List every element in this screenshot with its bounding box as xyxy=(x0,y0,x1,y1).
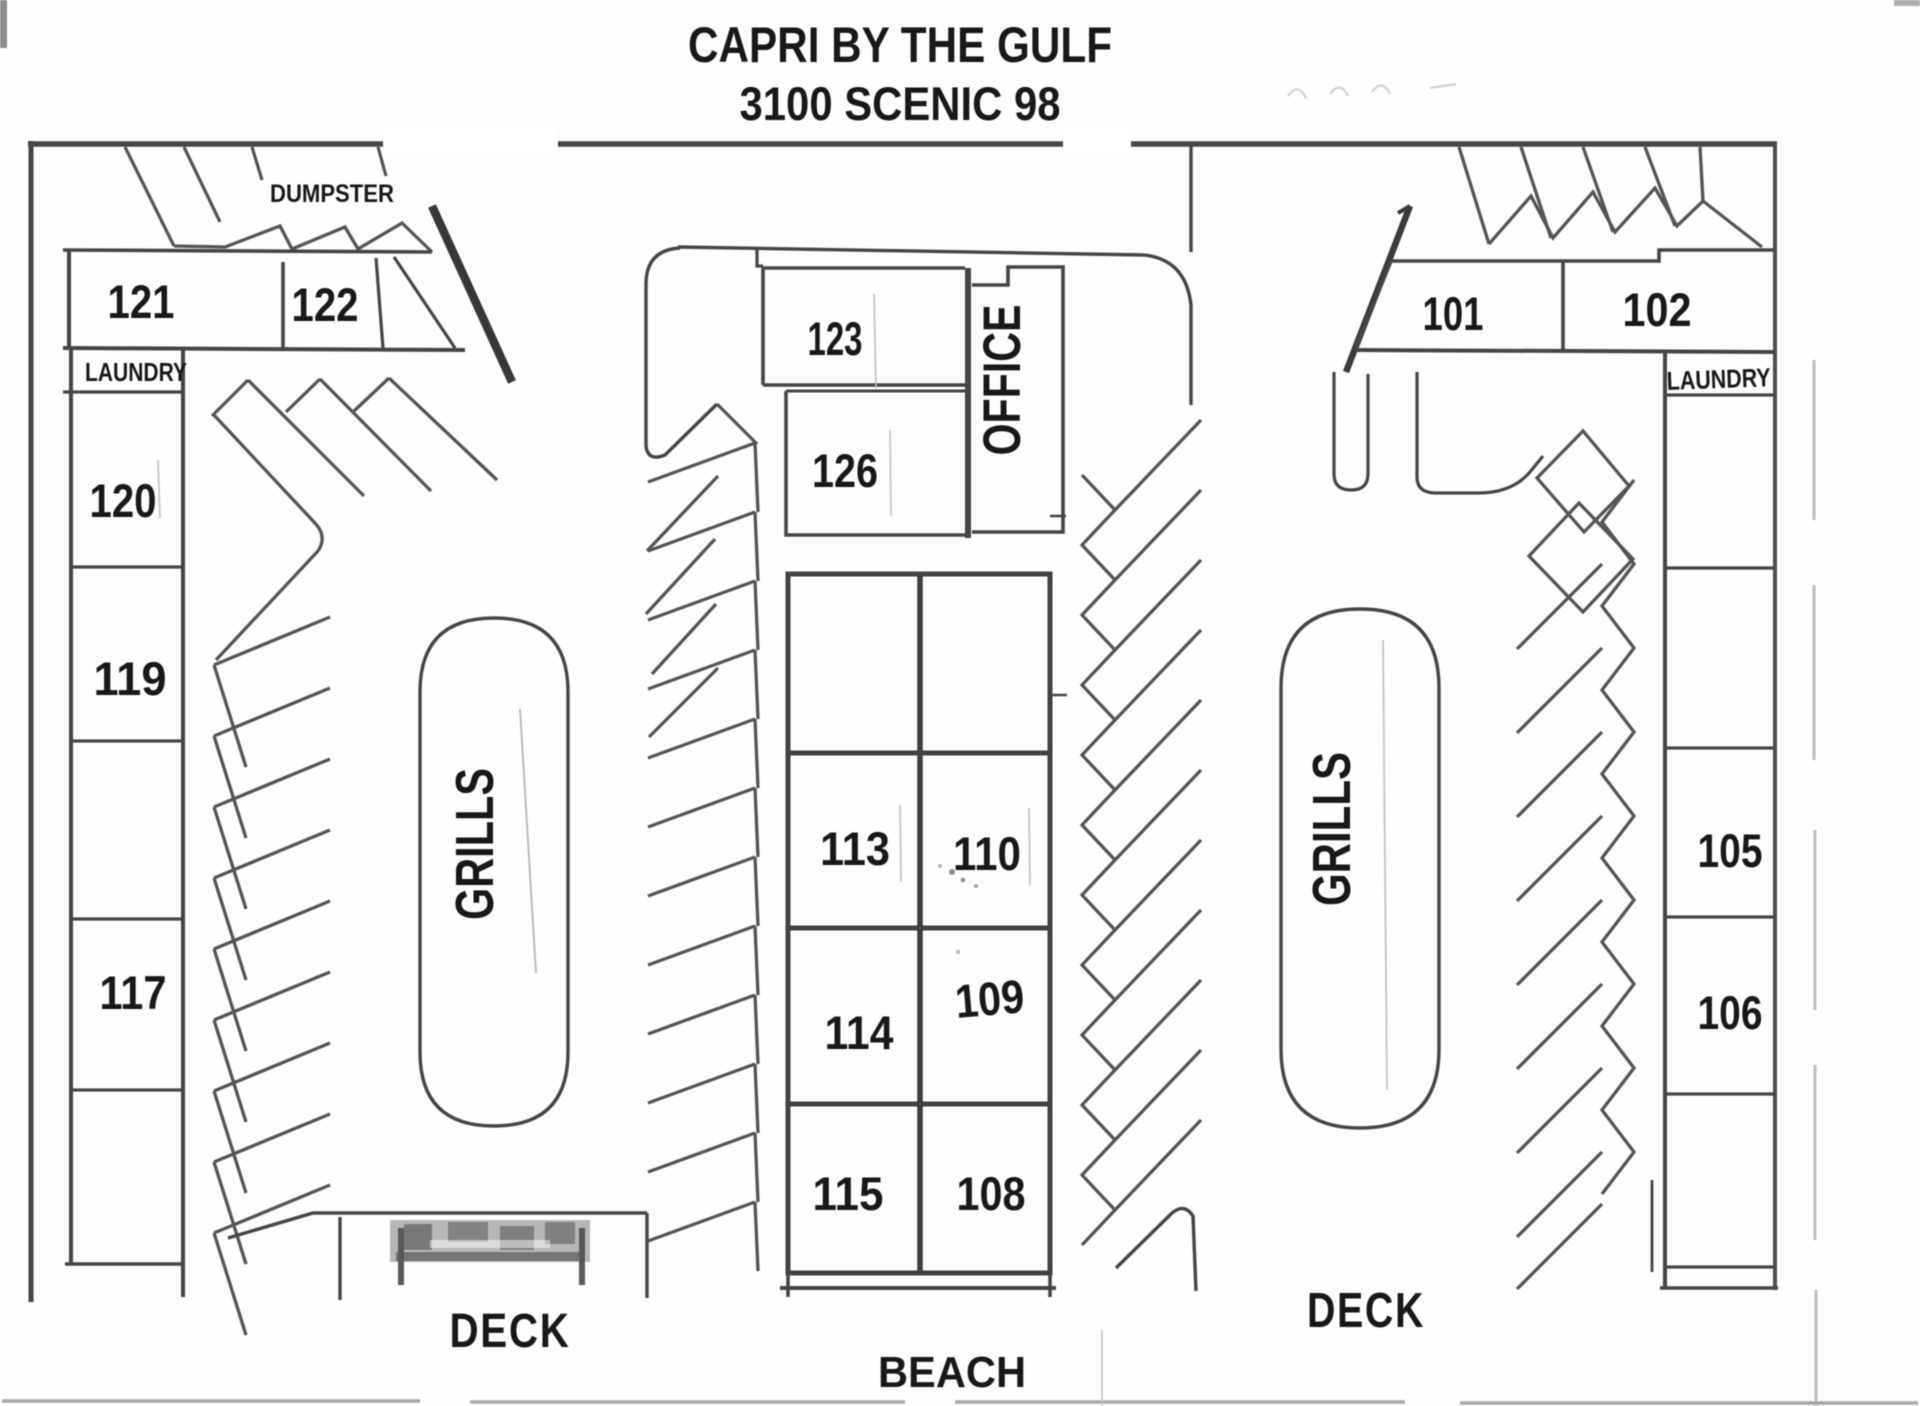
svg-text:105: 105 xyxy=(1698,824,1763,877)
svg-text:CAPRI BY THE GULF: CAPRI BY THE GULF xyxy=(688,17,1112,73)
svg-text:LAUNDRY: LAUNDRY xyxy=(1666,362,1771,396)
svg-text:117: 117 xyxy=(100,966,167,1019)
svg-text:DECK: DECK xyxy=(1307,1284,1425,1338)
svg-text:120: 120 xyxy=(90,474,157,527)
svg-text:113: 113 xyxy=(820,822,890,875)
svg-text:114: 114 xyxy=(825,1006,894,1059)
svg-text:GRILLS: GRILLS xyxy=(1302,752,1362,906)
svg-text:119: 119 xyxy=(94,652,167,705)
svg-text:115: 115 xyxy=(813,1167,884,1220)
svg-text:GRILLS: GRILLS xyxy=(445,768,505,920)
svg-text:106: 106 xyxy=(1698,986,1763,1039)
svg-text:126: 126 xyxy=(812,444,878,497)
svg-text:OFFICE: OFFICE xyxy=(973,305,1032,456)
svg-text:102: 102 xyxy=(1623,283,1692,336)
svg-text:DUMPSTER: DUMPSTER xyxy=(270,180,394,208)
svg-text:122: 122 xyxy=(292,278,359,331)
svg-text:3100 SCENIC 98: 3100 SCENIC 98 xyxy=(740,77,1061,130)
svg-text:110: 110 xyxy=(953,827,1021,880)
svg-text:101: 101 xyxy=(1423,287,1484,340)
svg-text:DECK: DECK xyxy=(450,1305,571,1358)
svg-text:108: 108 xyxy=(957,1167,1026,1220)
svg-text:LAUNDRY: LAUNDRY xyxy=(85,357,187,387)
svg-text:BEACH: BEACH xyxy=(878,1348,1026,1397)
svg-text:109: 109 xyxy=(953,969,1026,1028)
svg-text:121: 121 xyxy=(108,275,175,328)
svg-text:123: 123 xyxy=(808,312,863,365)
